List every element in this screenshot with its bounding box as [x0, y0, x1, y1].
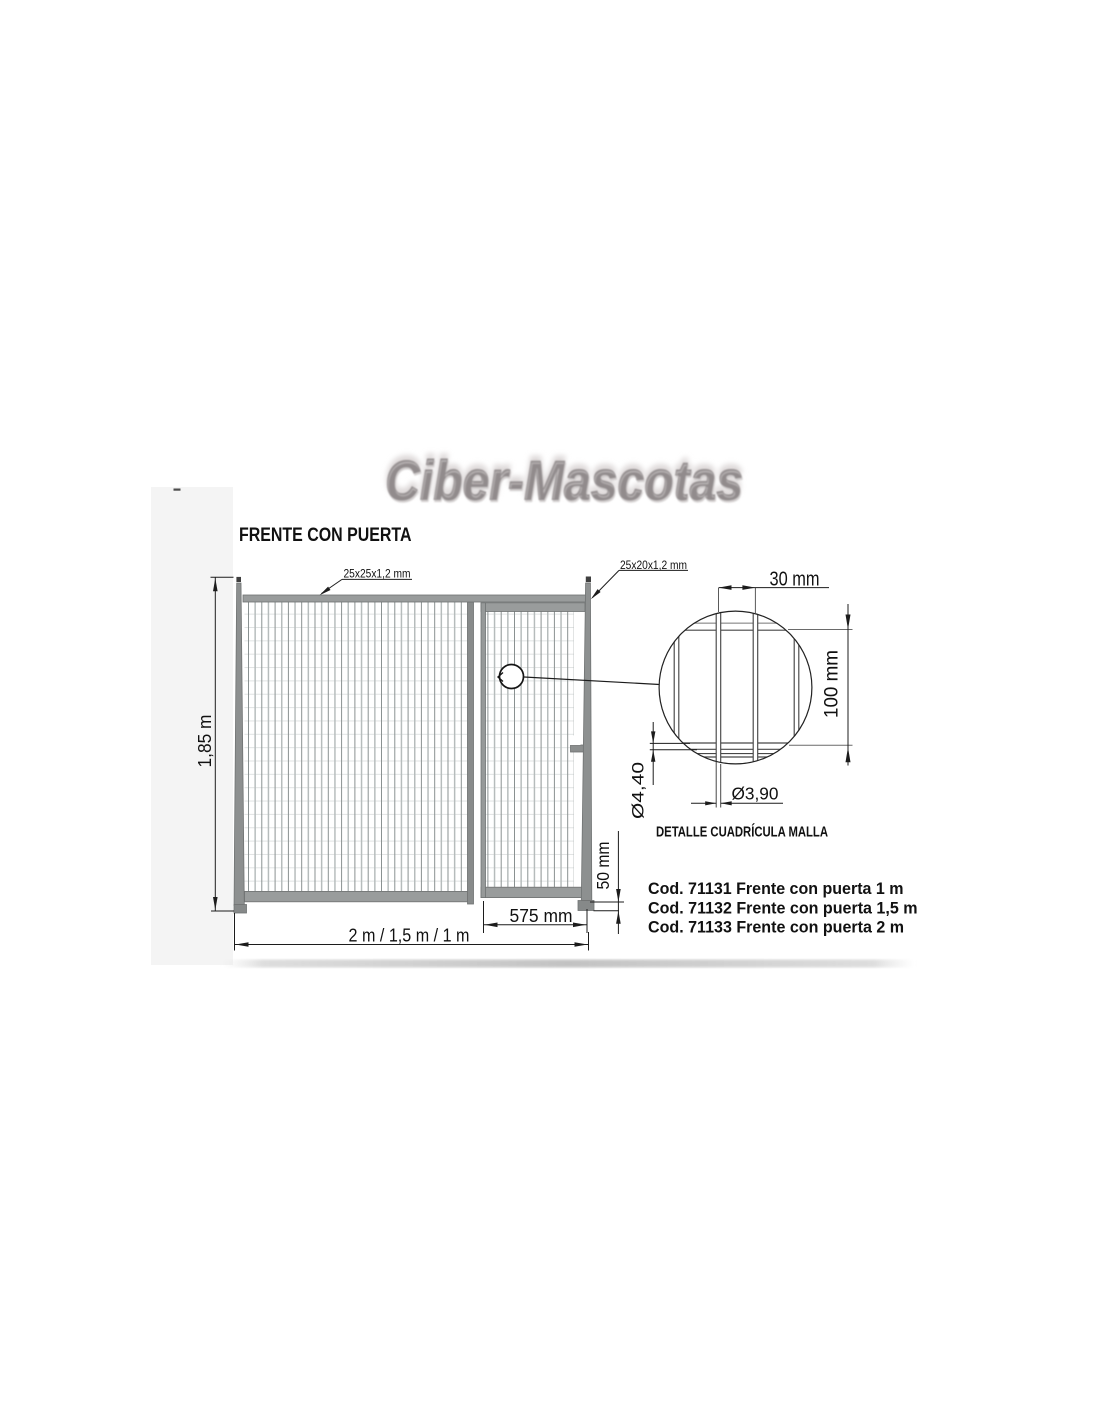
svg-text:30 mm: 30 mm [770, 569, 820, 591]
svg-text:Cod. 71131 Frente con puerta 1: Cod. 71131 Frente con puerta 1 m [648, 880, 904, 898]
svg-text:575 mm: 575 mm [510, 906, 573, 926]
svg-text:Ciber-Mascotas: Ciber-Mascotas [385, 449, 743, 512]
svg-text:FRENTE CON PUERTA: FRENTE CON PUERTA [239, 524, 412, 546]
svg-text:Ø3,90: Ø3,90 [732, 784, 779, 804]
svg-text:DETALLE CUADRÍCULA MALLA: DETALLE CUADRÍCULA MALLA [656, 824, 828, 841]
svg-text:Cod. 71133 Frente con puerta 2: Cod. 71133 Frente con puerta 2 m [648, 919, 904, 937]
svg-text:1,85 m: 1,85 m [195, 715, 215, 768]
svg-text:100 mm: 100 mm [821, 650, 843, 718]
svg-text:Ø4,40: Ø4,40 [629, 762, 648, 819]
svg-text:Cod. 71132 Frente con puerta 1: Cod. 71132 Frente con puerta 1,5 m [648, 899, 918, 917]
svg-text:25x25x1,2 mm: 25x25x1,2 mm [344, 569, 411, 581]
svg-text:2 m / 1,5 m / 1 m: 2 m / 1,5 m / 1 m [349, 926, 470, 946]
svg-text:50 mm: 50 mm [593, 842, 613, 890]
